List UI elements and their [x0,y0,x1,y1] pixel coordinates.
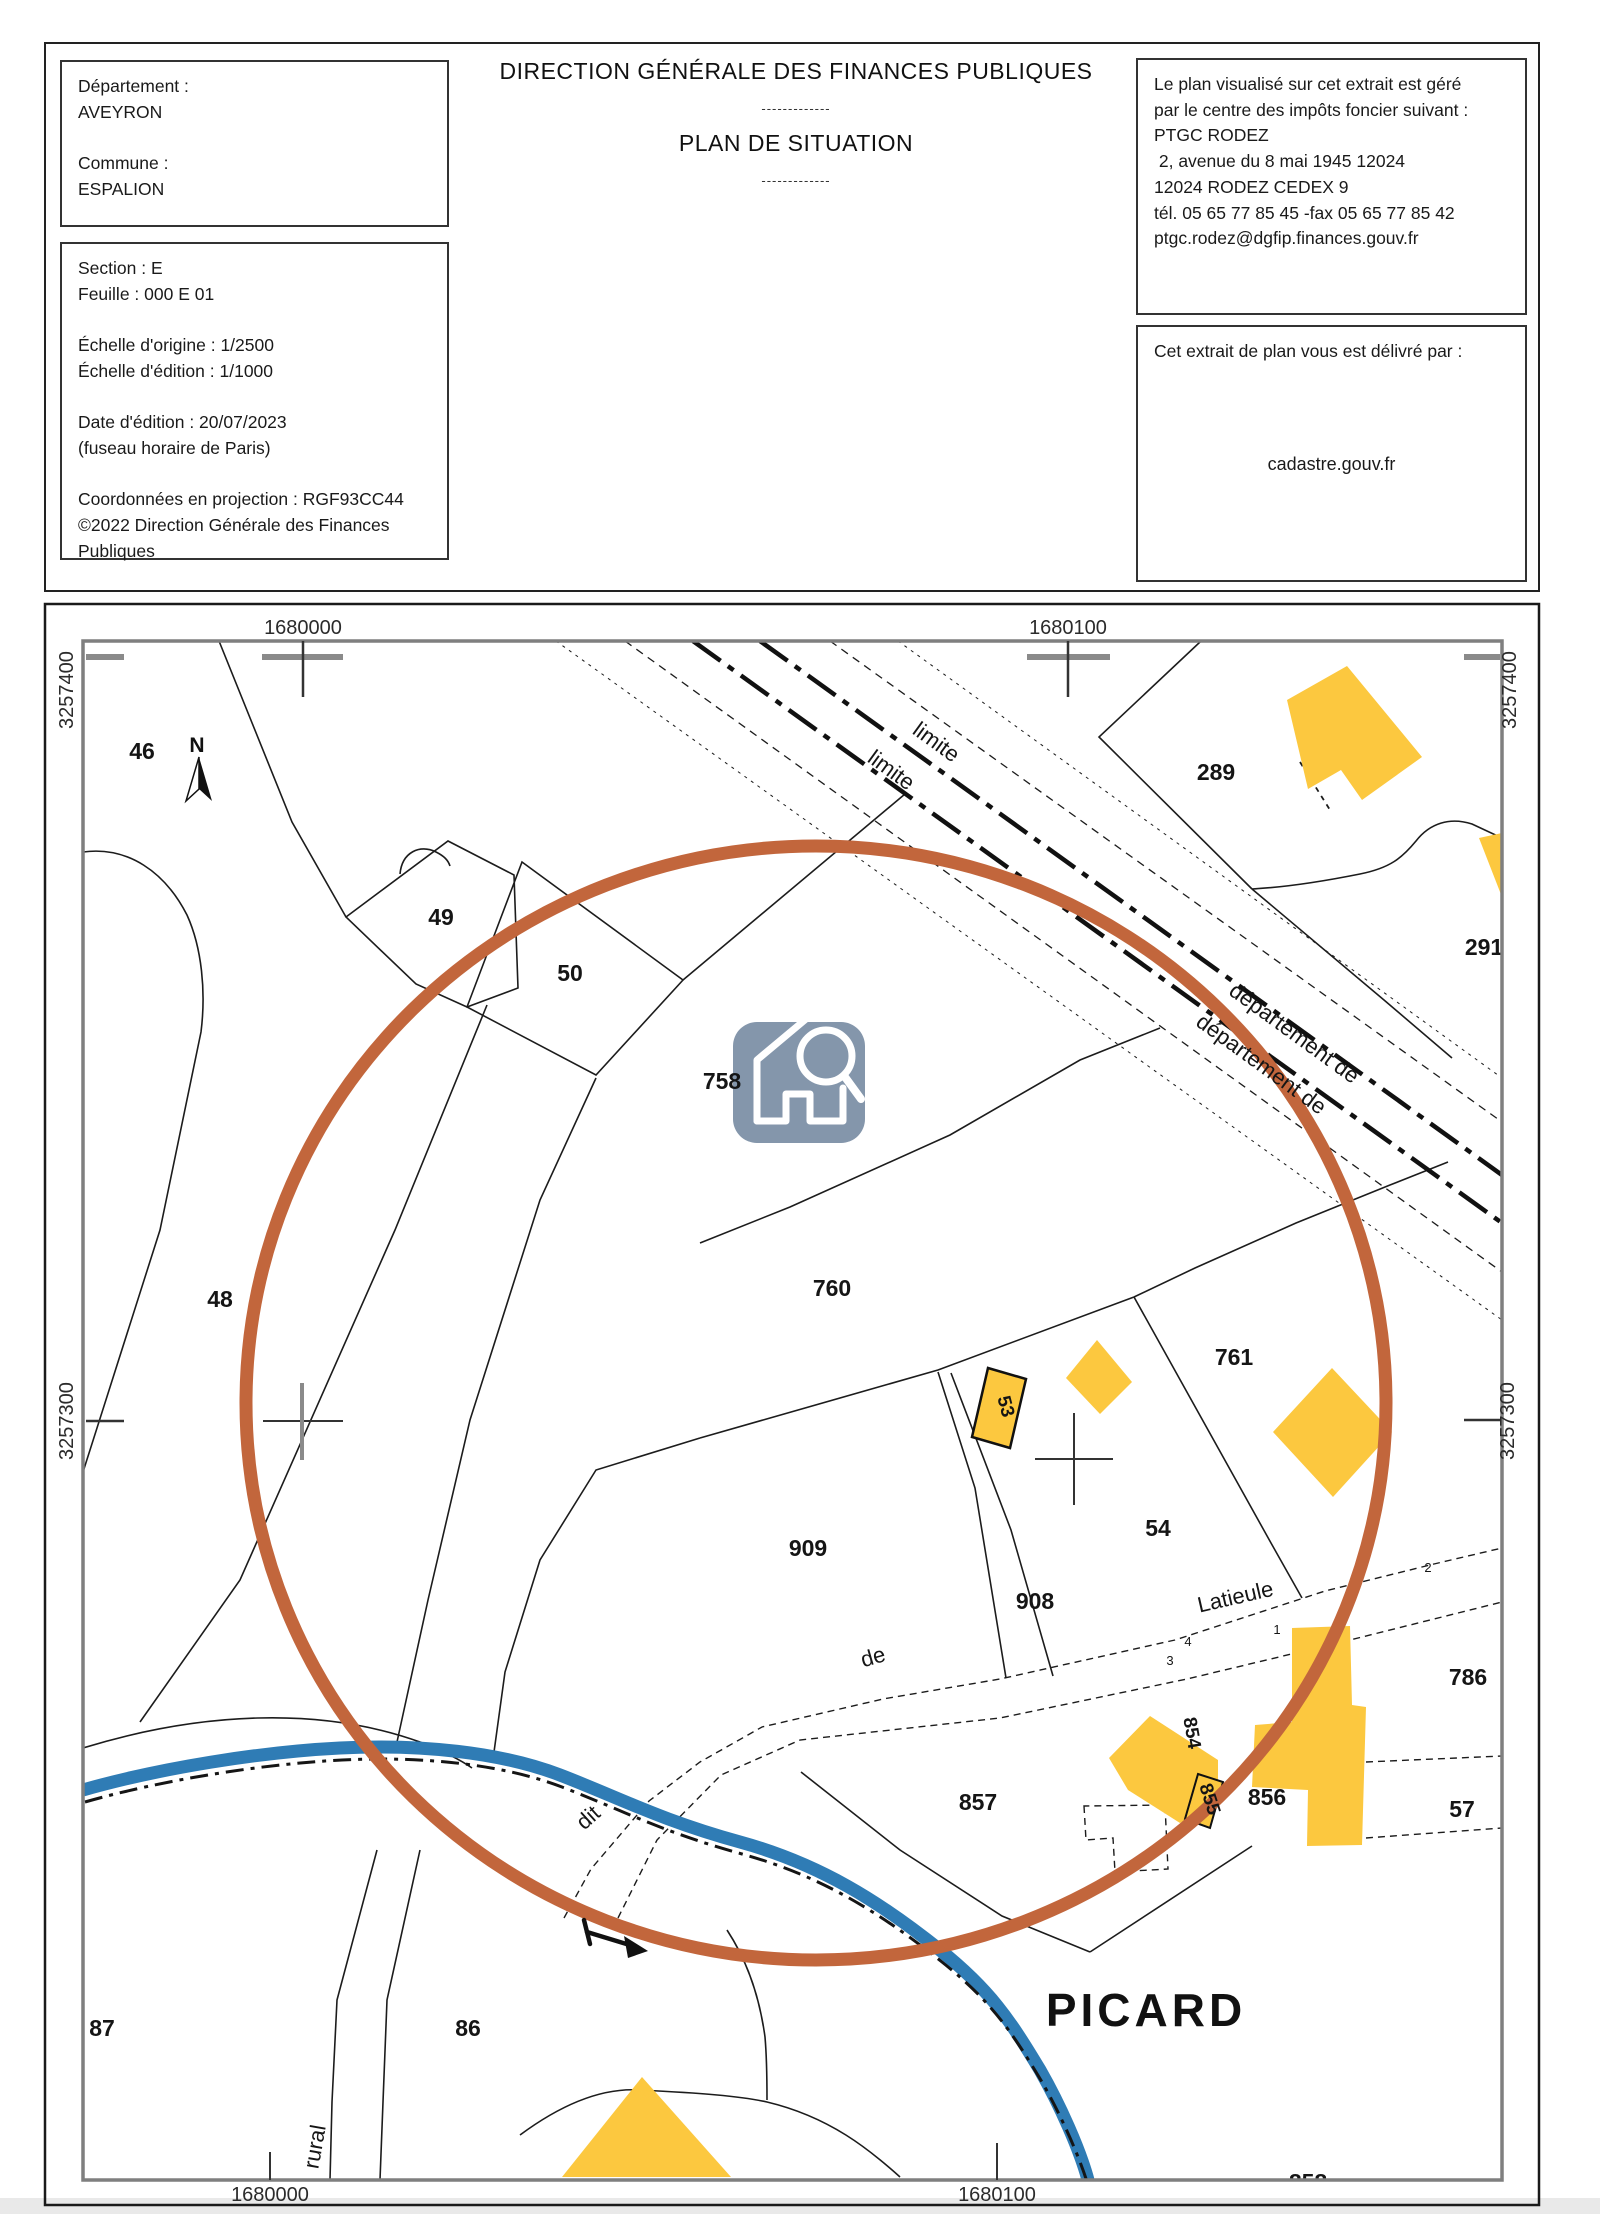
grid-y-right-mid: 3257300 [1497,1382,1519,1460]
parcel-label-48: 48 [207,1286,233,1312]
grid-x-bottom-left: 1680000 [231,2184,309,2206]
grid-y-left-top: 3257400 [56,651,78,729]
parcel-label-856: 856 [1248,1784,1286,1810]
building [1066,1340,1132,1414]
place-label-picard: PICARD [1046,1984,1246,2036]
road-name-de: de [858,1641,888,1672]
parcel-label-50: 50 [557,960,583,986]
grid-y-left-mid: 3257300 [56,1382,78,1460]
parcel-label-758: 758 [703,1068,742,1094]
parcel-label-289: 289 [1197,759,1235,785]
road-number: 2 [1424,1560,1431,1575]
parcel-label-760: 760 [813,1275,851,1301]
north-arrow-icon [186,757,212,801]
parcel-label-786: 786 [1449,1664,1487,1690]
parcel-label-86: 86 [455,2015,481,2041]
map-neatline [83,641,1502,2180]
parcel-label-909: 909 [789,1535,827,1561]
parcel-labels: 46 49 50 758 48 760 761 53 54 909 908 85… [89,738,1503,2195]
grid-x-top-right: 1680100 [1029,617,1107,639]
parcel-boundaries [83,641,1502,2180]
house-search-icon [733,1019,865,1143]
parcel-label-291: 291 [1465,934,1504,960]
map-interior: N 46 49 50 758 48 760 761 53 54 90 [83,641,1503,2195]
parcel-label-49: 49 [428,904,454,930]
road-number: 4 [1184,1634,1191,1649]
building [1287,666,1422,800]
parcel-label-54: 54 [1145,1515,1171,1541]
grid-x-top-left: 1680000 [264,617,342,639]
cadastral-map: N 46 49 50 758 48 760 761 53 54 90 [0,0,1600,2214]
border-ticks [86,641,1500,2180]
building [1273,1368,1392,1497]
parcel-label-858: 858 [1289,2169,1328,2195]
north-label: N [189,734,204,757]
grid-x-bottom-right: 1680100 [958,2184,1036,2206]
road-number: 1 [1273,1622,1280,1637]
parcel-label-57: 57 [1449,1796,1475,1822]
parcel-label-761: 761 [1215,1344,1254,1370]
road-name-rural: rural [298,2123,330,2171]
parcel-label-46: 46 [129,738,155,764]
departement-label-2: département de [1192,1009,1331,1120]
grid-y-right-top: 3257400 [1499,651,1521,729]
building [562,2077,731,2177]
parcel-label-908: 908 [1016,1588,1055,1614]
road-number: 3 [1166,1653,1173,1668]
building [1479,833,1502,897]
parcel-label-857: 857 [959,1789,997,1815]
road-name-dit: dit [571,1800,605,1834]
parcel-label-87: 87 [89,2015,115,2041]
limite-label-1: limite [908,717,964,767]
